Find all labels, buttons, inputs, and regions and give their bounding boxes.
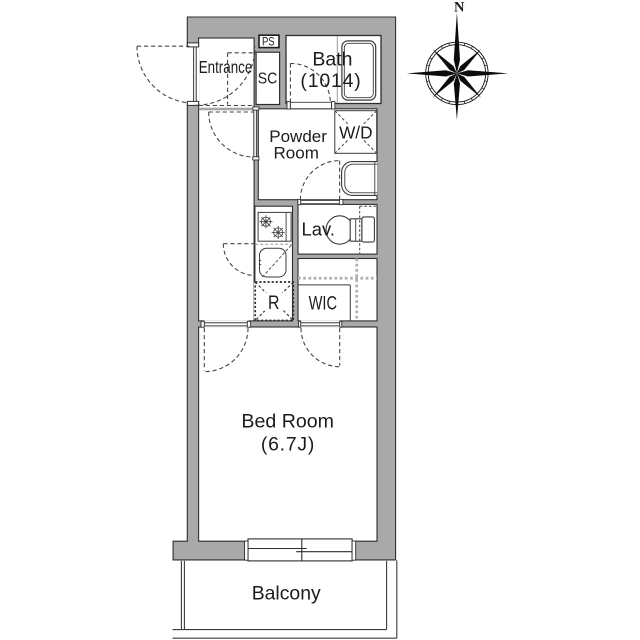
svg-text:R: R: [268, 292, 280, 314]
svg-text:Bed Room: Bed Room: [241, 411, 334, 433]
svg-text:Room: Room: [274, 143, 319, 162]
svg-text:Balcony: Balcony: [252, 582, 321, 604]
svg-text:W/D: W/D: [339, 123, 372, 143]
svg-text:Bath: Bath: [312, 48, 352, 70]
svg-text:SC: SC: [258, 71, 278, 88]
svg-text:PS: PS: [262, 35, 275, 49]
svg-text:(6.7J): (6.7J): [261, 433, 315, 455]
svg-text:WIC: WIC: [309, 293, 337, 315]
svg-text:Lav.: Lav.: [302, 219, 336, 240]
svg-text:N: N: [454, 0, 465, 16]
svg-text:(1014): (1014): [300, 70, 361, 92]
svg-text:Entrance: Entrance: [199, 57, 253, 77]
